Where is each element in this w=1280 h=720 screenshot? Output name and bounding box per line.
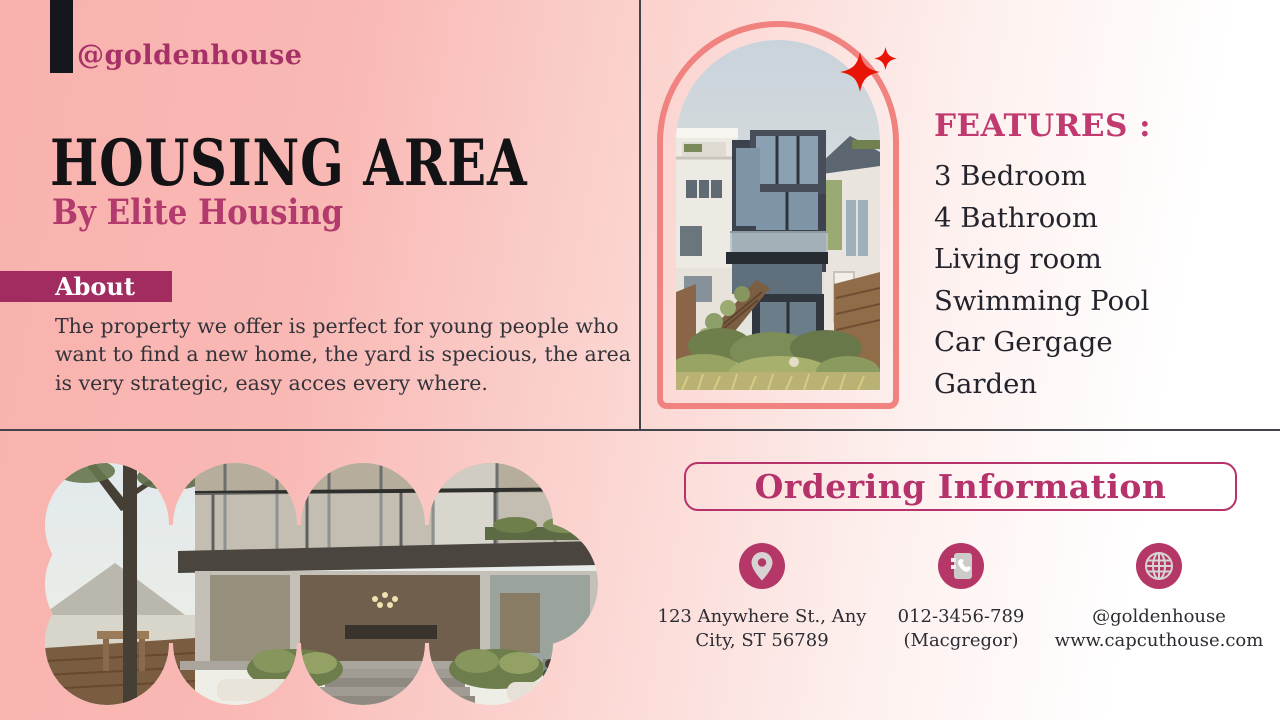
page-subtitle: By Elite Housing — [52, 192, 343, 233]
contact-phone-text: 012-3456-789 (Macgregor) — [851, 605, 1071, 654]
location-pin-icon — [739, 543, 785, 589]
feature-item: 4 Bathroom — [934, 198, 1151, 240]
scalloped-house-photo — [45, 463, 598, 705]
contact-phone: 012-3456-789 (Macgregor) — [851, 543, 1071, 654]
features-section: FEATURES : 3 Bedroom 4 Bathroom Living r… — [934, 108, 1151, 405]
sparkle-icon — [874, 47, 897, 70]
globe-icon — [1136, 543, 1182, 589]
brand-handle: @goldenhouse — [77, 40, 302, 71]
ordering-heading-box: Ordering Information — [684, 462, 1237, 511]
feature-item: Car Gergage — [934, 322, 1151, 364]
decor-black-bar — [50, 0, 73, 73]
vertical-divider — [639, 0, 641, 430]
contact-address-text: 123 Anywhere St., Any City, ST 56789 — [652, 605, 872, 654]
feature-item: Swimming Pool — [934, 281, 1151, 323]
feature-item: Living room — [934, 239, 1151, 281]
phone-book-icon — [938, 543, 984, 589]
contact-address: 123 Anywhere St., Any City, ST 56789 — [652, 543, 872, 654]
about-body: The property we offer is perfect for you… — [55, 312, 640, 397]
contact-web-text: @goldenhouse www.capcuthouse.com — [1049, 605, 1269, 654]
about-chip: About — [0, 271, 172, 302]
page-title: HOUSING AREA — [50, 126, 528, 201]
flyer-canvas: @goldenhouse HOUSING AREA By Elite Housi… — [0, 0, 1280, 720]
ordering-heading: Ordering Information — [755, 467, 1167, 506]
scalloped-house-illustration — [45, 463, 598, 705]
feature-item: Garden — [934, 364, 1151, 406]
contact-web: @goldenhouse www.capcuthouse.com — [1049, 543, 1269, 654]
arch-house-photo — [676, 40, 880, 390]
about-label: About — [0, 272, 135, 301]
horizontal-divider — [0, 429, 1280, 431]
feature-item: 3 Bedroom — [934, 156, 1151, 198]
features-heading: FEATURES : — [934, 108, 1151, 144]
features-list: 3 Bedroom 4 Bathroom Living room Swimmin… — [934, 156, 1151, 405]
arch-house-illustration — [676, 40, 880, 390]
